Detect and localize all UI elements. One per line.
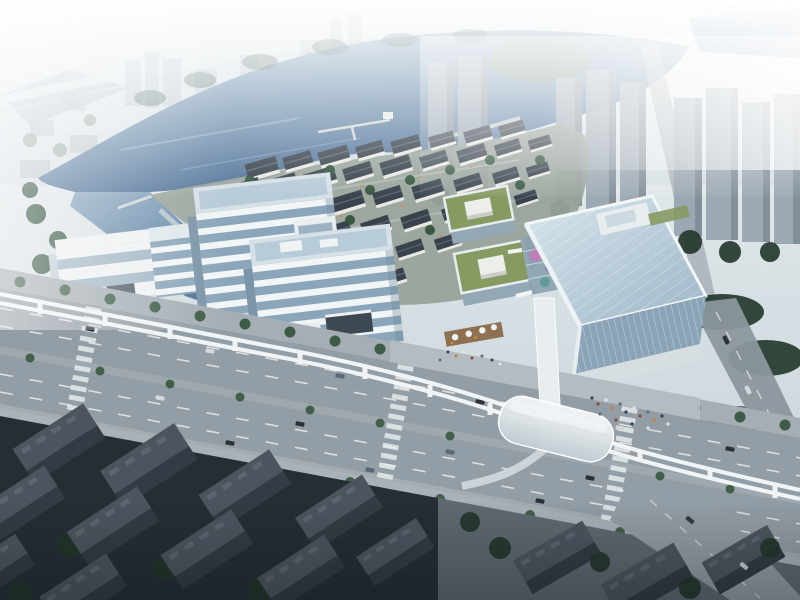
architectural-rendering: Aerial architectural rendering of a lake… <box>0 0 800 600</box>
scene-svg: Aerial architectural rendering of a lake… <box>0 0 800 600</box>
